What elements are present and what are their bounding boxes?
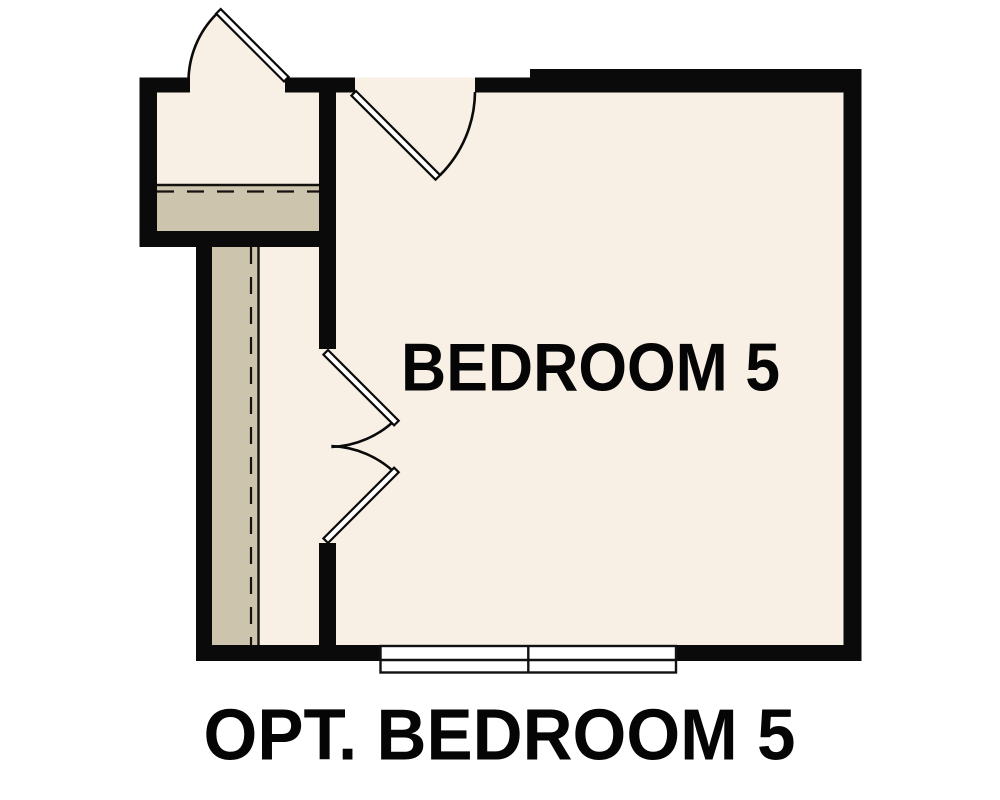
svg-text:BEDROOM 5: BEDROOM 5 (401, 331, 780, 406)
svg-text:OPT. BEDROOM 5: OPT. BEDROOM 5 (204, 695, 796, 776)
